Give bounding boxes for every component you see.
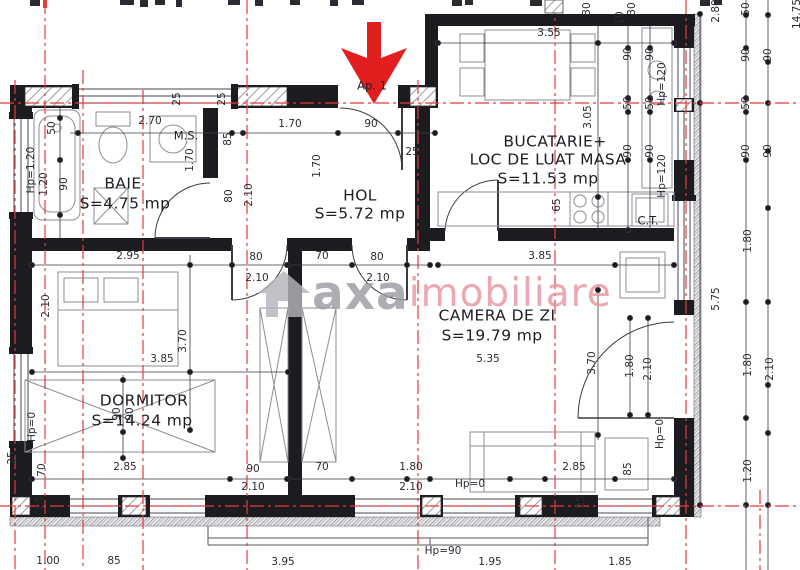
dimension-label: 2.85 bbox=[562, 462, 585, 473]
small-label: M.S. bbox=[174, 130, 199, 142]
small-label: C.T. bbox=[637, 215, 658, 227]
dimension-label: 2.10 bbox=[244, 183, 255, 206]
dimension-label: 30 bbox=[627, 2, 638, 15]
dimension-label: 1.70 bbox=[278, 119, 301, 130]
dimension-label: 90 bbox=[623, 144, 634, 157]
dimension-label: 5.75 bbox=[711, 287, 722, 310]
room-label: S=19.79 mp bbox=[441, 328, 542, 344]
kitchen-counter bbox=[438, 28, 674, 226]
dimension-label: 2.80 bbox=[711, 0, 722, 23]
dimension-label: 1.20 bbox=[39, 172, 50, 195]
dimension-label: 25 bbox=[172, 92, 183, 105]
dimension-label: 80 bbox=[224, 189, 235, 202]
room-label: LOC DE LUAT MASA bbox=[470, 152, 627, 168]
dimension-label: 2.10 bbox=[643, 357, 654, 380]
dimension-label: 1.85 bbox=[608, 557, 631, 568]
dimension-label: 1.80 bbox=[743, 229, 754, 252]
dimension-label: 3.05 bbox=[583, 105, 594, 128]
dimension-label: 70 bbox=[315, 251, 328, 262]
dimension-label: 2.10 bbox=[41, 294, 52, 317]
dimension-label: Hp=0 bbox=[27, 412, 38, 442]
dimension-label: 2.95 bbox=[116, 251, 139, 262]
dimension-label: 1.70 bbox=[185, 148, 196, 171]
dimension-label: 3.70 bbox=[587, 351, 598, 374]
stove bbox=[570, 192, 608, 226]
dimension-label: 2.10 bbox=[765, 357, 776, 380]
dimension-label: 85 bbox=[623, 462, 634, 475]
dimension-label: 2.10 bbox=[399, 482, 422, 493]
dimension-label: 1.95 bbox=[478, 557, 501, 568]
kitchen-door bbox=[445, 180, 498, 231]
dimension-label: 14.75 bbox=[792, 0, 800, 29]
tv-stand bbox=[620, 252, 665, 298]
dimension-label: 25 bbox=[405, 147, 418, 158]
dimension-label: 2.85 bbox=[113, 462, 136, 473]
room-label: S=5.72 mp bbox=[315, 206, 406, 222]
dimension-label: 1.20 bbox=[743, 459, 754, 482]
window-right-kitchen-2 bbox=[678, 112, 690, 160]
dimension-label: Hp=90 bbox=[425, 546, 462, 557]
dimension-label: 50 bbox=[741, 96, 752, 109]
dimension-label: 1.80 bbox=[399, 462, 422, 473]
dimension-label: 90 bbox=[645, 144, 656, 157]
floor-plan: axaimobiliare BAIES=4.75 mpHOLS=5.72 mpB… bbox=[0, 0, 800, 570]
dimension-label: Hp=120 bbox=[657, 154, 668, 197]
dining-table bbox=[460, 30, 595, 100]
dimension-label: 90 bbox=[741, 144, 752, 157]
room-label: BUCATARIE+ bbox=[503, 134, 606, 150]
dimension-label: 50 bbox=[645, 96, 656, 109]
dimension-label: 1.00 bbox=[36, 556, 59, 567]
dimension-label: 25 bbox=[7, 451, 18, 464]
dimension-label: 90 bbox=[112, 407, 123, 420]
room-label: CAMERA DE ZI bbox=[439, 308, 556, 324]
dimension-label: 3.85 bbox=[528, 251, 551, 262]
room-label: BAIE bbox=[104, 176, 141, 192]
dimension-label: 25 bbox=[35, 496, 46, 509]
dimension-label: 25 bbox=[576, 495, 587, 508]
room-label: S=4.75 mp bbox=[80, 196, 171, 212]
window-right-kitchen-1 bbox=[678, 48, 690, 98]
dimension-label: 2.10 bbox=[245, 273, 268, 284]
dimension-label: 2.10 bbox=[366, 273, 389, 284]
dimension-label: 90 bbox=[623, 47, 634, 60]
dimension-label: 1.80 bbox=[625, 354, 636, 377]
dimension-label: 3.95 bbox=[271, 557, 294, 568]
dimension-label: 90 bbox=[246, 464, 259, 475]
dimension-label: 80 bbox=[249, 252, 262, 263]
dimension-label: 2.10 bbox=[241, 482, 264, 493]
small-label: Ap. 1 bbox=[357, 80, 387, 92]
toilet bbox=[96, 112, 130, 163]
room-label: S=11.53 mp bbox=[497, 171, 598, 187]
dimension-label: 70 bbox=[315, 462, 328, 473]
insulation-hatch bbox=[10, 14, 701, 526]
dimension-label: 30 bbox=[582, 2, 593, 15]
dimension-label: 25 bbox=[217, 92, 228, 105]
room-label: HOL bbox=[343, 188, 377, 204]
dimension-label: Hp=120 bbox=[657, 62, 668, 105]
dimension-label: 1.80 bbox=[743, 353, 754, 376]
room-label: S=14.24 mp bbox=[91, 413, 192, 429]
dimension-label: 80 bbox=[370, 252, 383, 263]
dimension-label: 90 bbox=[364, 119, 377, 130]
wardrobe-bedroom bbox=[260, 308, 288, 462]
dimension-label: 90 bbox=[741, 48, 752, 61]
dimension-label: 1.70 bbox=[312, 154, 323, 177]
dimension-label: 5.35 bbox=[476, 354, 499, 365]
dimension-label: 50 bbox=[623, 96, 634, 109]
dimension-label: 90 bbox=[59, 177, 70, 190]
dimension-label: 70 bbox=[37, 463, 48, 476]
dimension-label: 2.70 bbox=[138, 116, 161, 127]
dimension-label: 85 bbox=[107, 556, 120, 567]
dimension-label: 90 bbox=[645, 47, 656, 60]
dimension-label: Hp=1.20 bbox=[26, 147, 37, 194]
dimension-label: 85 bbox=[223, 132, 234, 145]
dimension-label: 50 bbox=[47, 121, 58, 134]
dimension-label: 90 bbox=[763, 144, 774, 157]
dimension-label: 3.55 bbox=[537, 28, 560, 39]
dimension-label: 3.70 bbox=[178, 329, 189, 352]
window-top-bath bbox=[72, 84, 238, 109]
dimension-label: 65 bbox=[552, 198, 563, 211]
dimension-label: 90 bbox=[763, 48, 774, 61]
dimension-label: 90 bbox=[125, 407, 136, 420]
dimension-label: Hp=0 bbox=[655, 419, 666, 449]
dimension-label: 3.85 bbox=[150, 354, 173, 365]
wardrobe-living bbox=[302, 308, 336, 462]
dimension-label: Hp=0 bbox=[455, 479, 485, 490]
dimension-label: 10 bbox=[615, 11, 626, 24]
window-right-living bbox=[672, 195, 696, 300]
dimension-label: 50 bbox=[741, 2, 752, 15]
